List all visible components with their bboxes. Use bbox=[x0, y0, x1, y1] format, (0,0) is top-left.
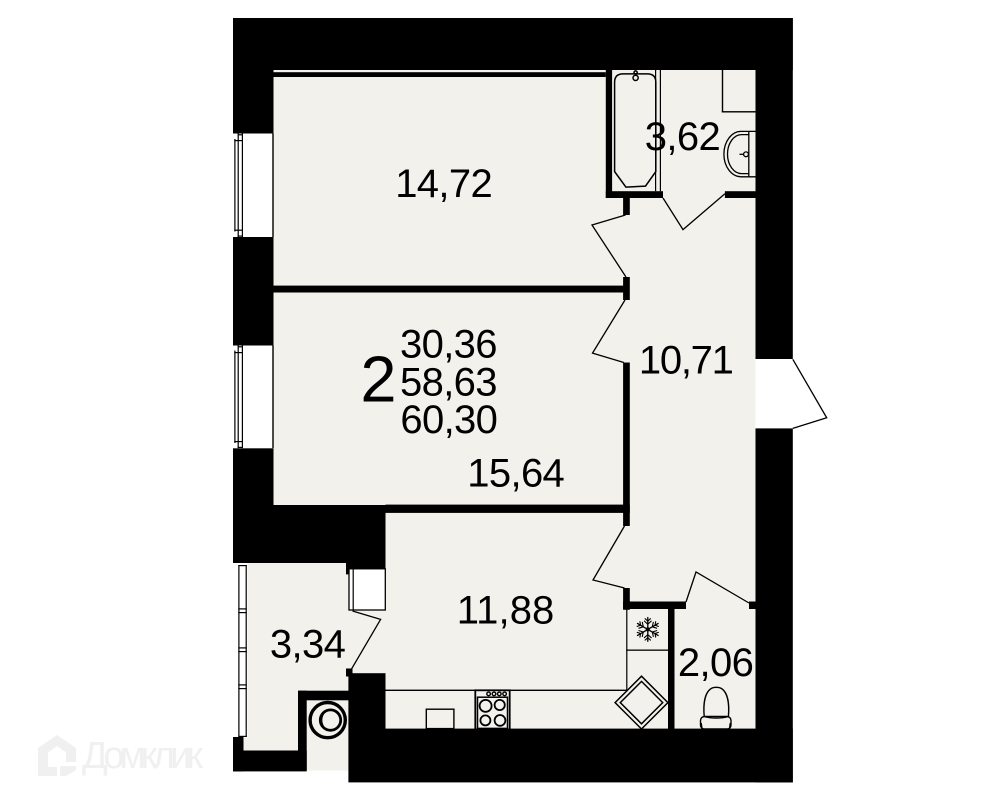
svg-text:14,72: 14,72 bbox=[395, 162, 493, 206]
svg-text:Домклик: Домклик bbox=[82, 735, 203, 777]
svg-text:10,71: 10,71 bbox=[639, 339, 734, 383]
svg-text:3,34: 3,34 bbox=[270, 623, 346, 667]
svg-text:2: 2 bbox=[360, 343, 396, 416]
svg-text:15,64: 15,64 bbox=[467, 451, 565, 495]
svg-text:3,62: 3,62 bbox=[645, 115, 721, 159]
svg-text:11,88: 11,88 bbox=[457, 589, 555, 633]
svg-text:2,06: 2,06 bbox=[678, 641, 754, 685]
svg-text:60,30: 60,30 bbox=[400, 398, 498, 442]
